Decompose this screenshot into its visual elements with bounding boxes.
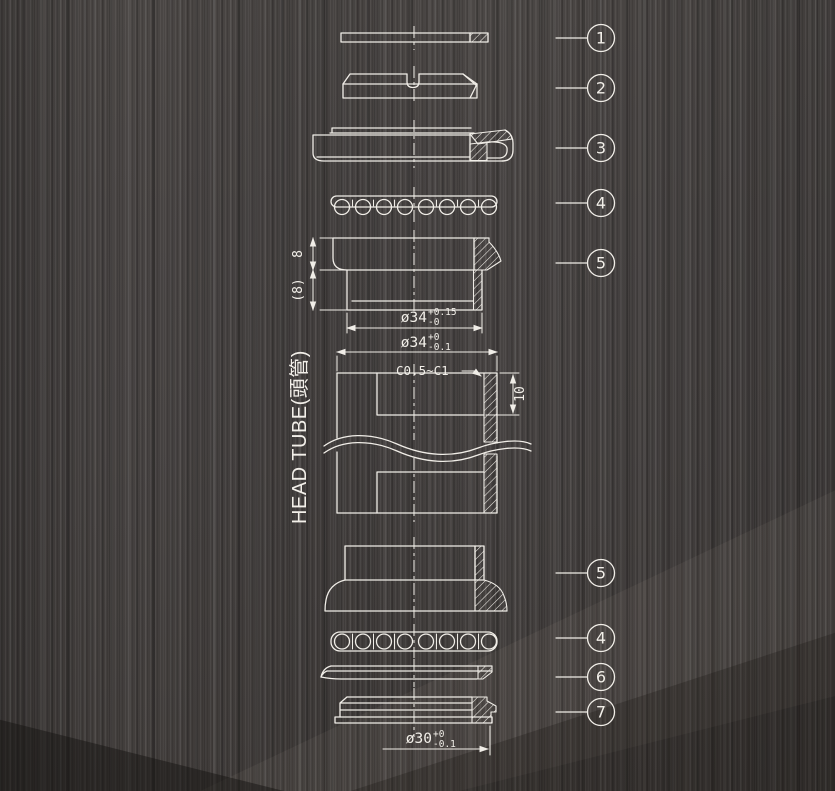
part-1-washer-drawing [341, 26, 488, 50]
callout-4: 4 [556, 190, 615, 217]
part-5-hatch-flare [474, 238, 501, 270]
callout-1: 1 [556, 25, 615, 52]
callout-5: 5 [556, 250, 615, 277]
dim-cup-od-tol-lower: -0 [428, 317, 440, 328]
part-2-spacer-drawing [343, 66, 477, 104]
part-6-hatch [478, 666, 492, 679]
chamfer-label: C0.5~C1 [396, 363, 449, 378]
part-7-hatch [472, 697, 496, 723]
callouts-lower: 5 4 6 7 [556, 560, 615, 726]
callout-6-number: 6 [596, 668, 606, 687]
callout-6: 6 [556, 664, 615, 691]
technical-drawing: 8 (8) ø34 +0.15 -0 ø34 +0 -0.1 C0.5~C1 [0, 0, 835, 791]
callout-1-number: 1 [596, 29, 606, 48]
callout-5-lower: 5 [556, 560, 615, 587]
callouts-upper: 1 2 3 4 5 [556, 25, 615, 277]
screenshot-stage: 8 (8) ø34 +0.15 -0 ø34 +0 -0.1 C0.5~C1 [0, 0, 835, 791]
dim-head-tube-bore-tol-lower: -0.1 [428, 342, 451, 353]
part-4-upper-retainer-drawing [331, 187, 497, 225]
part-5b-hatch-flare [475, 580, 507, 611]
part-3-top-cup-drawing [313, 120, 513, 168]
dim-cup-height-label: 8 [291, 250, 306, 258]
callout-3: 3 [556, 135, 615, 162]
part-1-hatch [470, 33, 488, 42]
dim-depth-label: 10 [513, 386, 528, 402]
part-6-seal-drawing [321, 659, 492, 687]
callout-4-lower: 4 [556, 625, 615, 652]
part-5-lower-cup-drawing [325, 537, 507, 620]
head-tube-hatch-upper [484, 373, 497, 442]
part-5-hatch-sleeve [474, 270, 483, 310]
callout-4-number: 4 [596, 194, 606, 213]
part-5b-hatch-sleeve [475, 546, 484, 580]
callout-2-number: 2 [596, 79, 606, 98]
head-tube-drawing: ø34 +0 -0.1 C0.5~C1 10 HEAD TUBE(頭管) [288, 332, 531, 524]
callout-7: 7 [556, 699, 615, 726]
part-5-upper-cup-drawing: 8 (8) ø34 +0.15 -0 [291, 230, 501, 333]
dim-crown-race-base: ø30 [406, 731, 432, 747]
head-tube-hatch-lower [484, 454, 497, 513]
dim-crown-race-tol-lower: -0.1 [433, 739, 456, 750]
callout-7-number: 7 [596, 703, 606, 722]
callout-5-lower-number: 5 [596, 564, 606, 583]
dim-head-tube-bore-base: ø34 [401, 335, 427, 351]
dim-cup-stack-height-label: (8) [291, 278, 306, 301]
callout-2: 2 [556, 75, 615, 102]
callout-3-number: 3 [596, 139, 606, 158]
callout-5-number: 5 [596, 254, 606, 273]
part-7-crown-race-drawing: ø30 +0 -0.1 [335, 688, 496, 755]
dim-cup-od-base: ø34 [401, 310, 427, 326]
part-4-lower-retainer-drawing [331, 624, 497, 658]
callout-4-lower-number: 4 [596, 629, 606, 648]
part-3-hatch-lower [470, 142, 487, 161]
head-tube-label: HEAD TUBE(頭管) [288, 350, 311, 524]
